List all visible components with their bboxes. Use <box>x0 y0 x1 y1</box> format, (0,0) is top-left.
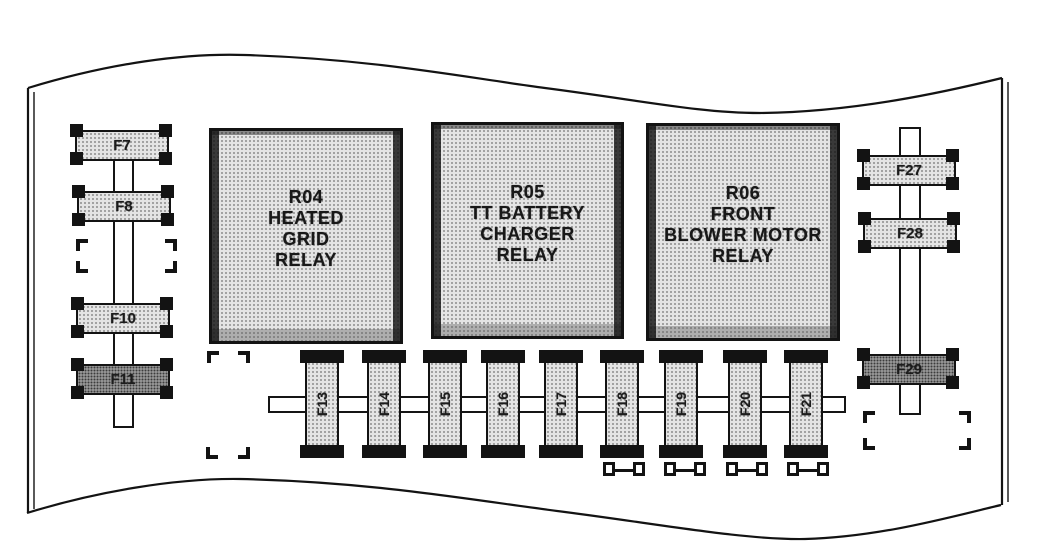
relay-r06: R06 FRONT BLOWER MOTOR RELAY <box>646 123 840 341</box>
fuse-f11-label: F11 <box>110 371 135 388</box>
fuse-f21: F21 <box>789 356 823 452</box>
fuse-f16: F16 <box>486 356 520 452</box>
fuse-f20-label: F20 <box>737 392 753 416</box>
fuse-f7: F7 <box>75 130 169 161</box>
fuse-corner-caps <box>857 348 870 361</box>
relay-r05-label: R05 TT BATTERY CHARGER RELAY <box>470 182 585 280</box>
fuse-f29: F29 <box>862 354 956 385</box>
fuse-f11: F11 <box>76 364 170 395</box>
fuse-f29-label: F29 <box>896 361 922 378</box>
fuse-f8-label: F8 <box>115 198 133 215</box>
terminal-clip <box>959 411 971 423</box>
terminal-clip <box>76 261 88 273</box>
fuse-corner-caps <box>71 358 84 371</box>
fuse-corner-caps <box>857 149 870 162</box>
fuse-f14-label: F14 <box>376 392 392 416</box>
relay-r05: R05 TT BATTERY CHARGER RELAY <box>431 122 624 339</box>
fuse-f17: F17 <box>544 356 578 452</box>
fuse-f16-label: F16 <box>495 392 511 416</box>
terminal-clip <box>206 447 218 459</box>
fuse-f18-label: F18 <box>614 392 630 416</box>
fuse-f19-label: F19 <box>673 392 689 416</box>
terminal-clip <box>165 239 177 251</box>
fuse-f19: F19 <box>664 356 698 452</box>
fuse-f27: F27 <box>862 155 956 186</box>
fuse-f21-label: F21 <box>798 392 814 416</box>
fuse-f8: F8 <box>77 191 171 222</box>
terminal-clip <box>863 438 875 450</box>
connector-clip <box>664 462 706 477</box>
terminal-clip <box>207 351 219 363</box>
fuse-f18: F18 <box>605 356 639 452</box>
fuse-box-diagram: R04 HEATED GRID RELAY R05 TT BATTERY CHA… <box>0 0 1038 560</box>
terminal-clip <box>76 239 88 251</box>
fuse-f13-label: F13 <box>314 392 330 416</box>
fuse-corner-caps <box>858 212 871 225</box>
terminal-clip <box>238 351 250 363</box>
terminal-clip <box>863 411 875 423</box>
connector-clip <box>726 462 768 477</box>
fuse-f27-label: F27 <box>896 162 922 179</box>
fuse-f15-label: F15 <box>437 392 453 416</box>
fuse-f10-label: F10 <box>110 310 136 327</box>
fuse-f28: F28 <box>863 218 957 249</box>
relay-r04-label: R04 HEATED GRID RELAY <box>268 187 344 285</box>
fuse-corner-caps <box>72 185 85 198</box>
terminal-clip <box>959 438 971 450</box>
terminal-clip <box>165 261 177 273</box>
fuse-f10: F10 <box>76 303 170 334</box>
fuse-f15: F15 <box>428 356 462 452</box>
terminal-clip <box>238 447 250 459</box>
relay-r06-label: R06 FRONT BLOWER MOTOR RELAY <box>664 183 822 281</box>
connector-clip <box>787 462 829 477</box>
fuse-f13: F13 <box>305 356 339 452</box>
relay-r04: R04 HEATED GRID RELAY <box>209 128 403 344</box>
fuse-f28-label: F28 <box>897 225 923 242</box>
fuse-corner-caps <box>70 124 83 137</box>
fuse-corner-caps <box>71 297 84 310</box>
fuse-f7-label: F7 <box>113 137 131 154</box>
fuse-f17-label: F17 <box>553 392 569 416</box>
fuse-f20: F20 <box>728 356 762 452</box>
connector-clip <box>603 462 645 477</box>
fuse-f14: F14 <box>367 356 401 452</box>
